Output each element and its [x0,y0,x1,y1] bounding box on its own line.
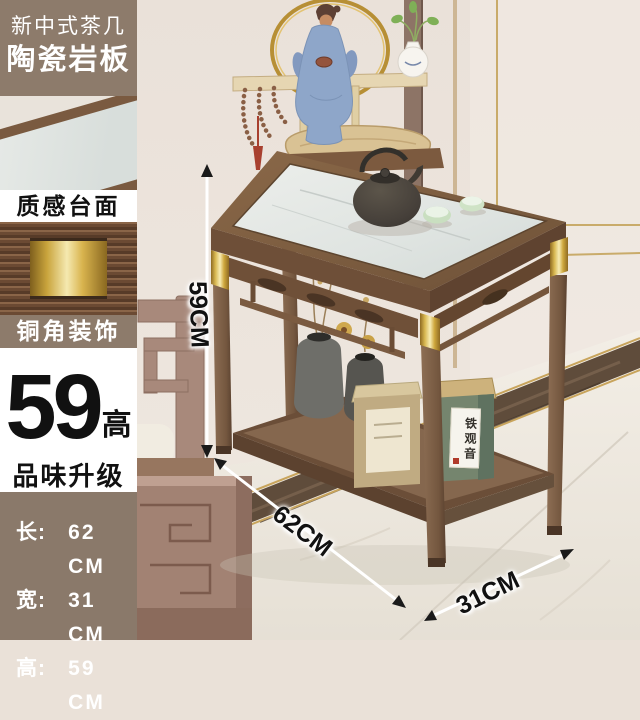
tabletop-detail-photo [0,96,137,190]
copper-corner-photo [0,222,137,315]
texture-label: 质感台面 [0,190,137,222]
height-dimension-label: 59CM [182,276,214,353]
spec-row-width: 宽: 31 CM [16,584,137,652]
tagline: 品味升级 [0,456,137,493]
gold-corner-detail [30,241,107,297]
spec-row-length: 长: 62 CM [16,516,137,584]
product-page: { "badge": { "line1": "新中式茶几", "line2": … [0,0,640,640]
height-unit: 高 [102,400,132,450]
spec-value: 59 CM [68,652,137,720]
table-leg-front-left [213,284,232,452]
height-number: 59 [5,364,99,450]
badge-line1: 新中式茶几 [0,13,137,41]
gold-corner-cap [420,313,440,351]
spec-row-height: 高: 59 CM [16,652,137,720]
gold-corner-cap [211,250,229,290]
badge-line2: 陶瓷岩板 [0,41,137,79]
copper-corner-label: 铜角装饰 [0,315,137,348]
spec-label: 长: [16,516,58,584]
tin-seal [453,458,459,464]
spec-value: 31 CM [68,584,137,652]
spec-label: 宽: [16,584,58,652]
spec-value: 62 CM [68,516,137,584]
spec-label: 高: [16,652,58,720]
gold-corner-cap [550,237,568,277]
spec-list: 长: 62 CM 宽: 31 CM 高: 59 CM [0,492,137,640]
height-highlight: 59 高 品味升级 [0,348,137,492]
tabletop-detail-slab [0,96,137,190]
title-badge: 新中式茶几 陶瓷岩板 [0,0,137,96]
